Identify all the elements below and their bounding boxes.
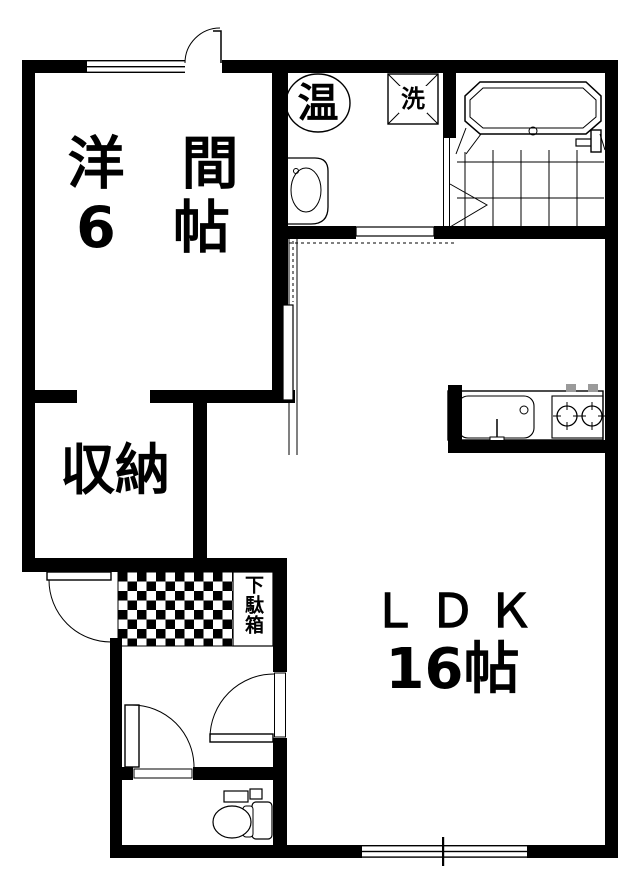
stove-knob-left xyxy=(566,384,576,392)
ldk-label: ＬＤＫ 16帖 xyxy=(330,584,575,702)
wall-bottom-left xyxy=(110,845,362,858)
kitchen-counter xyxy=(448,384,606,446)
door-entrance xyxy=(47,572,111,642)
wall-bathroom-bottom xyxy=(456,226,618,239)
western-room-size: 6 帖 xyxy=(33,196,273,260)
washbasin xyxy=(287,158,328,224)
door-hall-ldk xyxy=(210,673,286,742)
western-room-label: 洋 間 6 帖 xyxy=(33,132,273,260)
wall-toilet-top-a xyxy=(110,767,133,780)
window-bottom xyxy=(362,837,527,866)
wall-westroom-bottom-a xyxy=(22,390,77,403)
bathtub xyxy=(465,82,601,135)
ldk-name: ＬＤＫ xyxy=(342,584,575,638)
toilet-fixture xyxy=(213,789,272,839)
wall-hall-right-b xyxy=(273,738,287,858)
door-toilet xyxy=(125,705,194,778)
wall-toilet-top-b xyxy=(193,767,287,780)
floorplan-canvas: 洋 間 6 帖 収納 ＬＤＫ 16帖 温 洗 下駄箱 xyxy=(0,0,641,888)
stove-knob-right xyxy=(588,384,598,392)
wall-hall-right-a xyxy=(273,558,287,672)
water-heater-label: 温 xyxy=(288,79,348,127)
storage-label: 収納 xyxy=(20,440,210,500)
wall-entrance-top xyxy=(22,558,287,572)
wall-porch xyxy=(110,638,122,858)
wall-bottom-right xyxy=(527,845,618,858)
shoe-cabinet-label: 下駄箱 xyxy=(236,575,264,647)
door-westroom-top xyxy=(185,28,221,63)
wall-kitchen-bottom xyxy=(448,440,618,453)
wall-washroom-bottom-a xyxy=(287,226,356,239)
window-top xyxy=(87,60,185,73)
wall-right xyxy=(605,60,618,858)
wall-washroom-bottom-b xyxy=(434,226,456,239)
entrance-tile-floor xyxy=(118,572,233,646)
washing-machine-label: 洗 xyxy=(392,84,434,114)
wall-westroom-bottom-b xyxy=(150,390,295,403)
ldk-size: 16帖 xyxy=(330,638,575,702)
wall-bath-divider xyxy=(443,60,456,138)
western-room-name: 洋 間 xyxy=(33,132,273,196)
